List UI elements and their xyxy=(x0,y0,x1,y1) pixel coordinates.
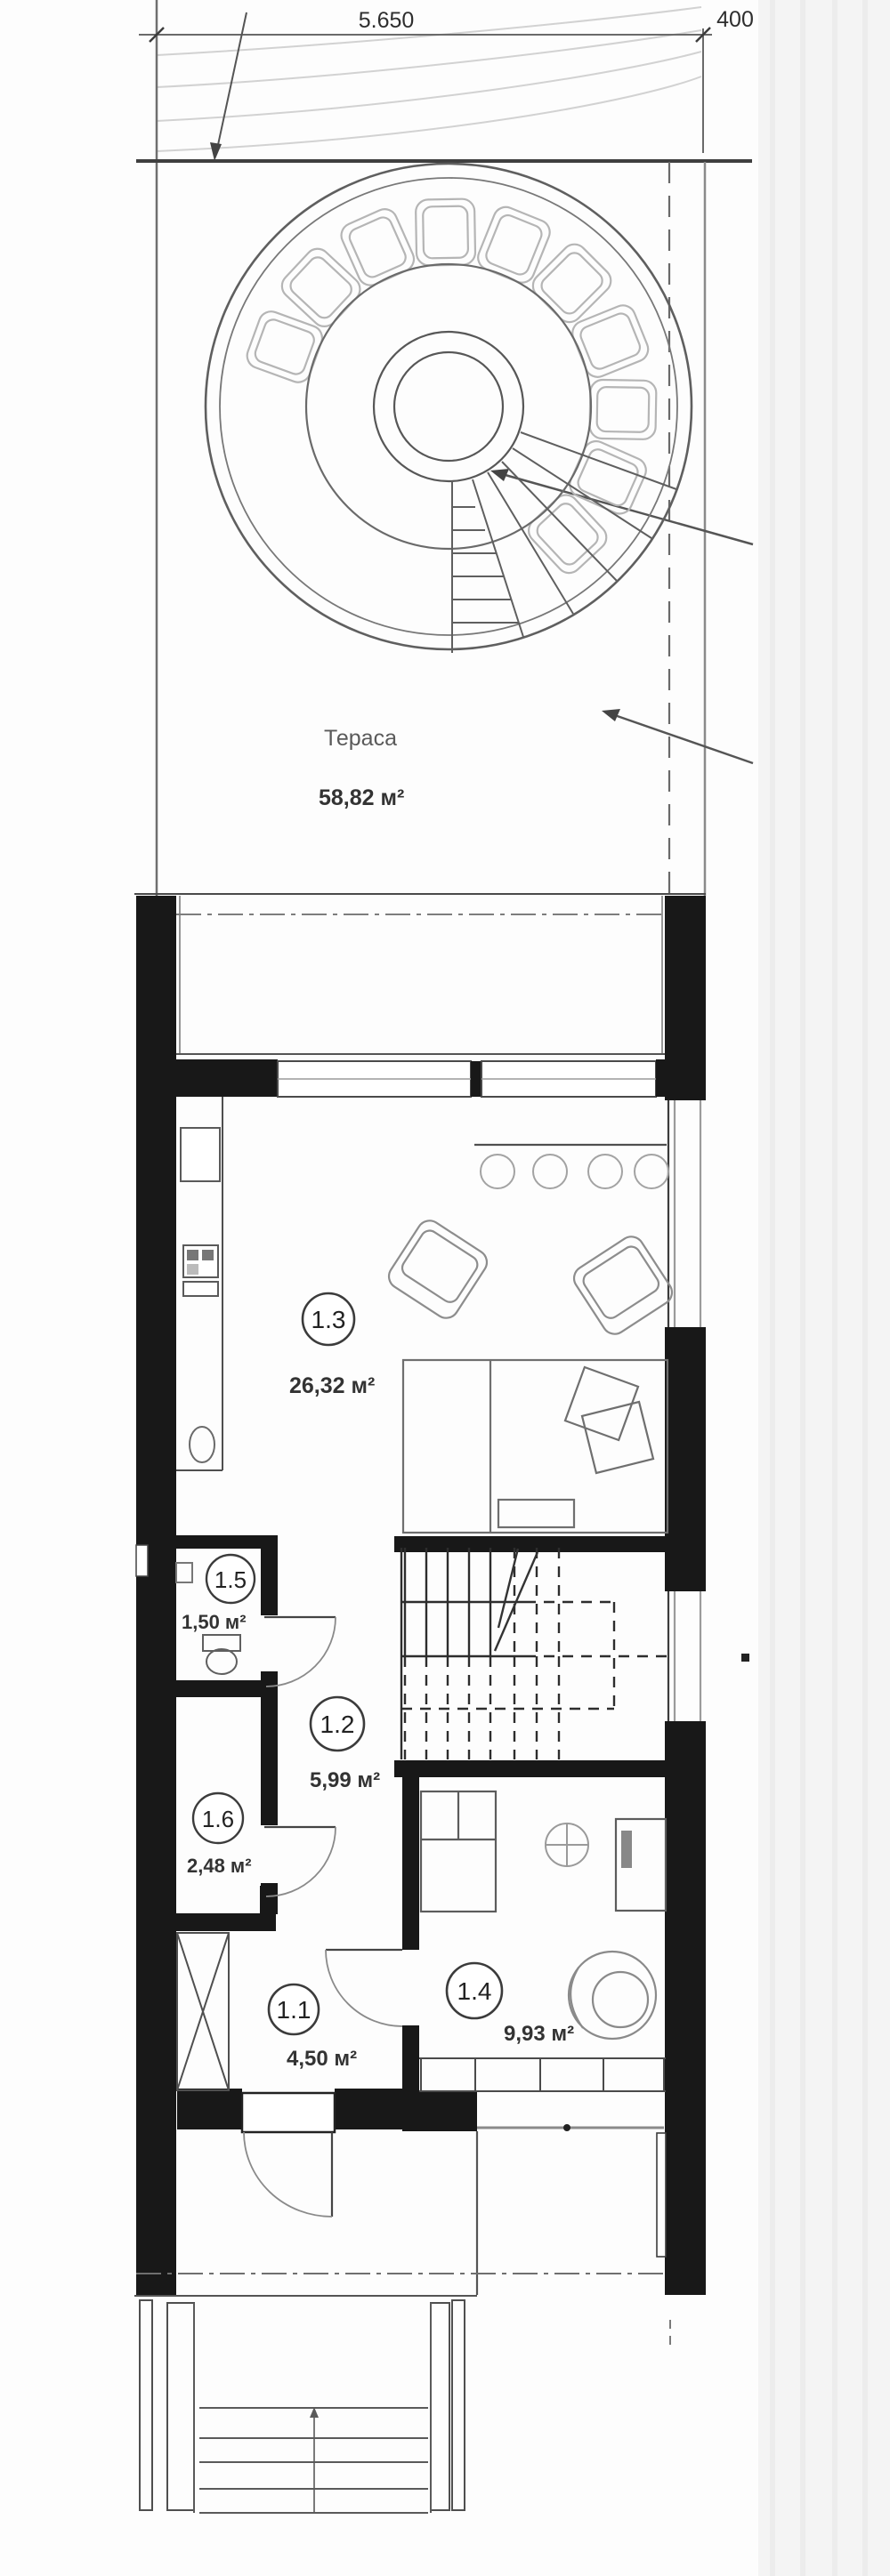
svg-text:Тераса: Тераса xyxy=(324,726,397,751)
svg-text:58,82 м²: 58,82 м² xyxy=(319,785,404,810)
svg-text:1.1: 1.1 xyxy=(277,1996,311,2024)
svg-text:400: 400 xyxy=(716,7,754,32)
svg-text:5,99 м²: 5,99 м² xyxy=(310,1768,380,1792)
svg-text:1,50 м²: 1,50 м² xyxy=(182,1611,247,1633)
svg-text:1.6: 1.6 xyxy=(202,1806,234,1832)
svg-text:1.5: 1.5 xyxy=(214,1566,247,1593)
svg-text:26,32 м²: 26,32 м² xyxy=(289,1373,375,1398)
svg-text:9,93 м²: 9,93 м² xyxy=(504,2022,574,2046)
svg-text:2,48 м²: 2,48 м² xyxy=(187,1855,252,1877)
svg-text:4,50 м²: 4,50 м² xyxy=(287,2047,357,2071)
svg-text:1.2: 1.2 xyxy=(320,1711,355,1738)
svg-text:1.4: 1.4 xyxy=(457,1977,492,2005)
svg-text:1.3: 1.3 xyxy=(311,1306,346,1333)
svg-text:5.650: 5.650 xyxy=(359,8,415,33)
